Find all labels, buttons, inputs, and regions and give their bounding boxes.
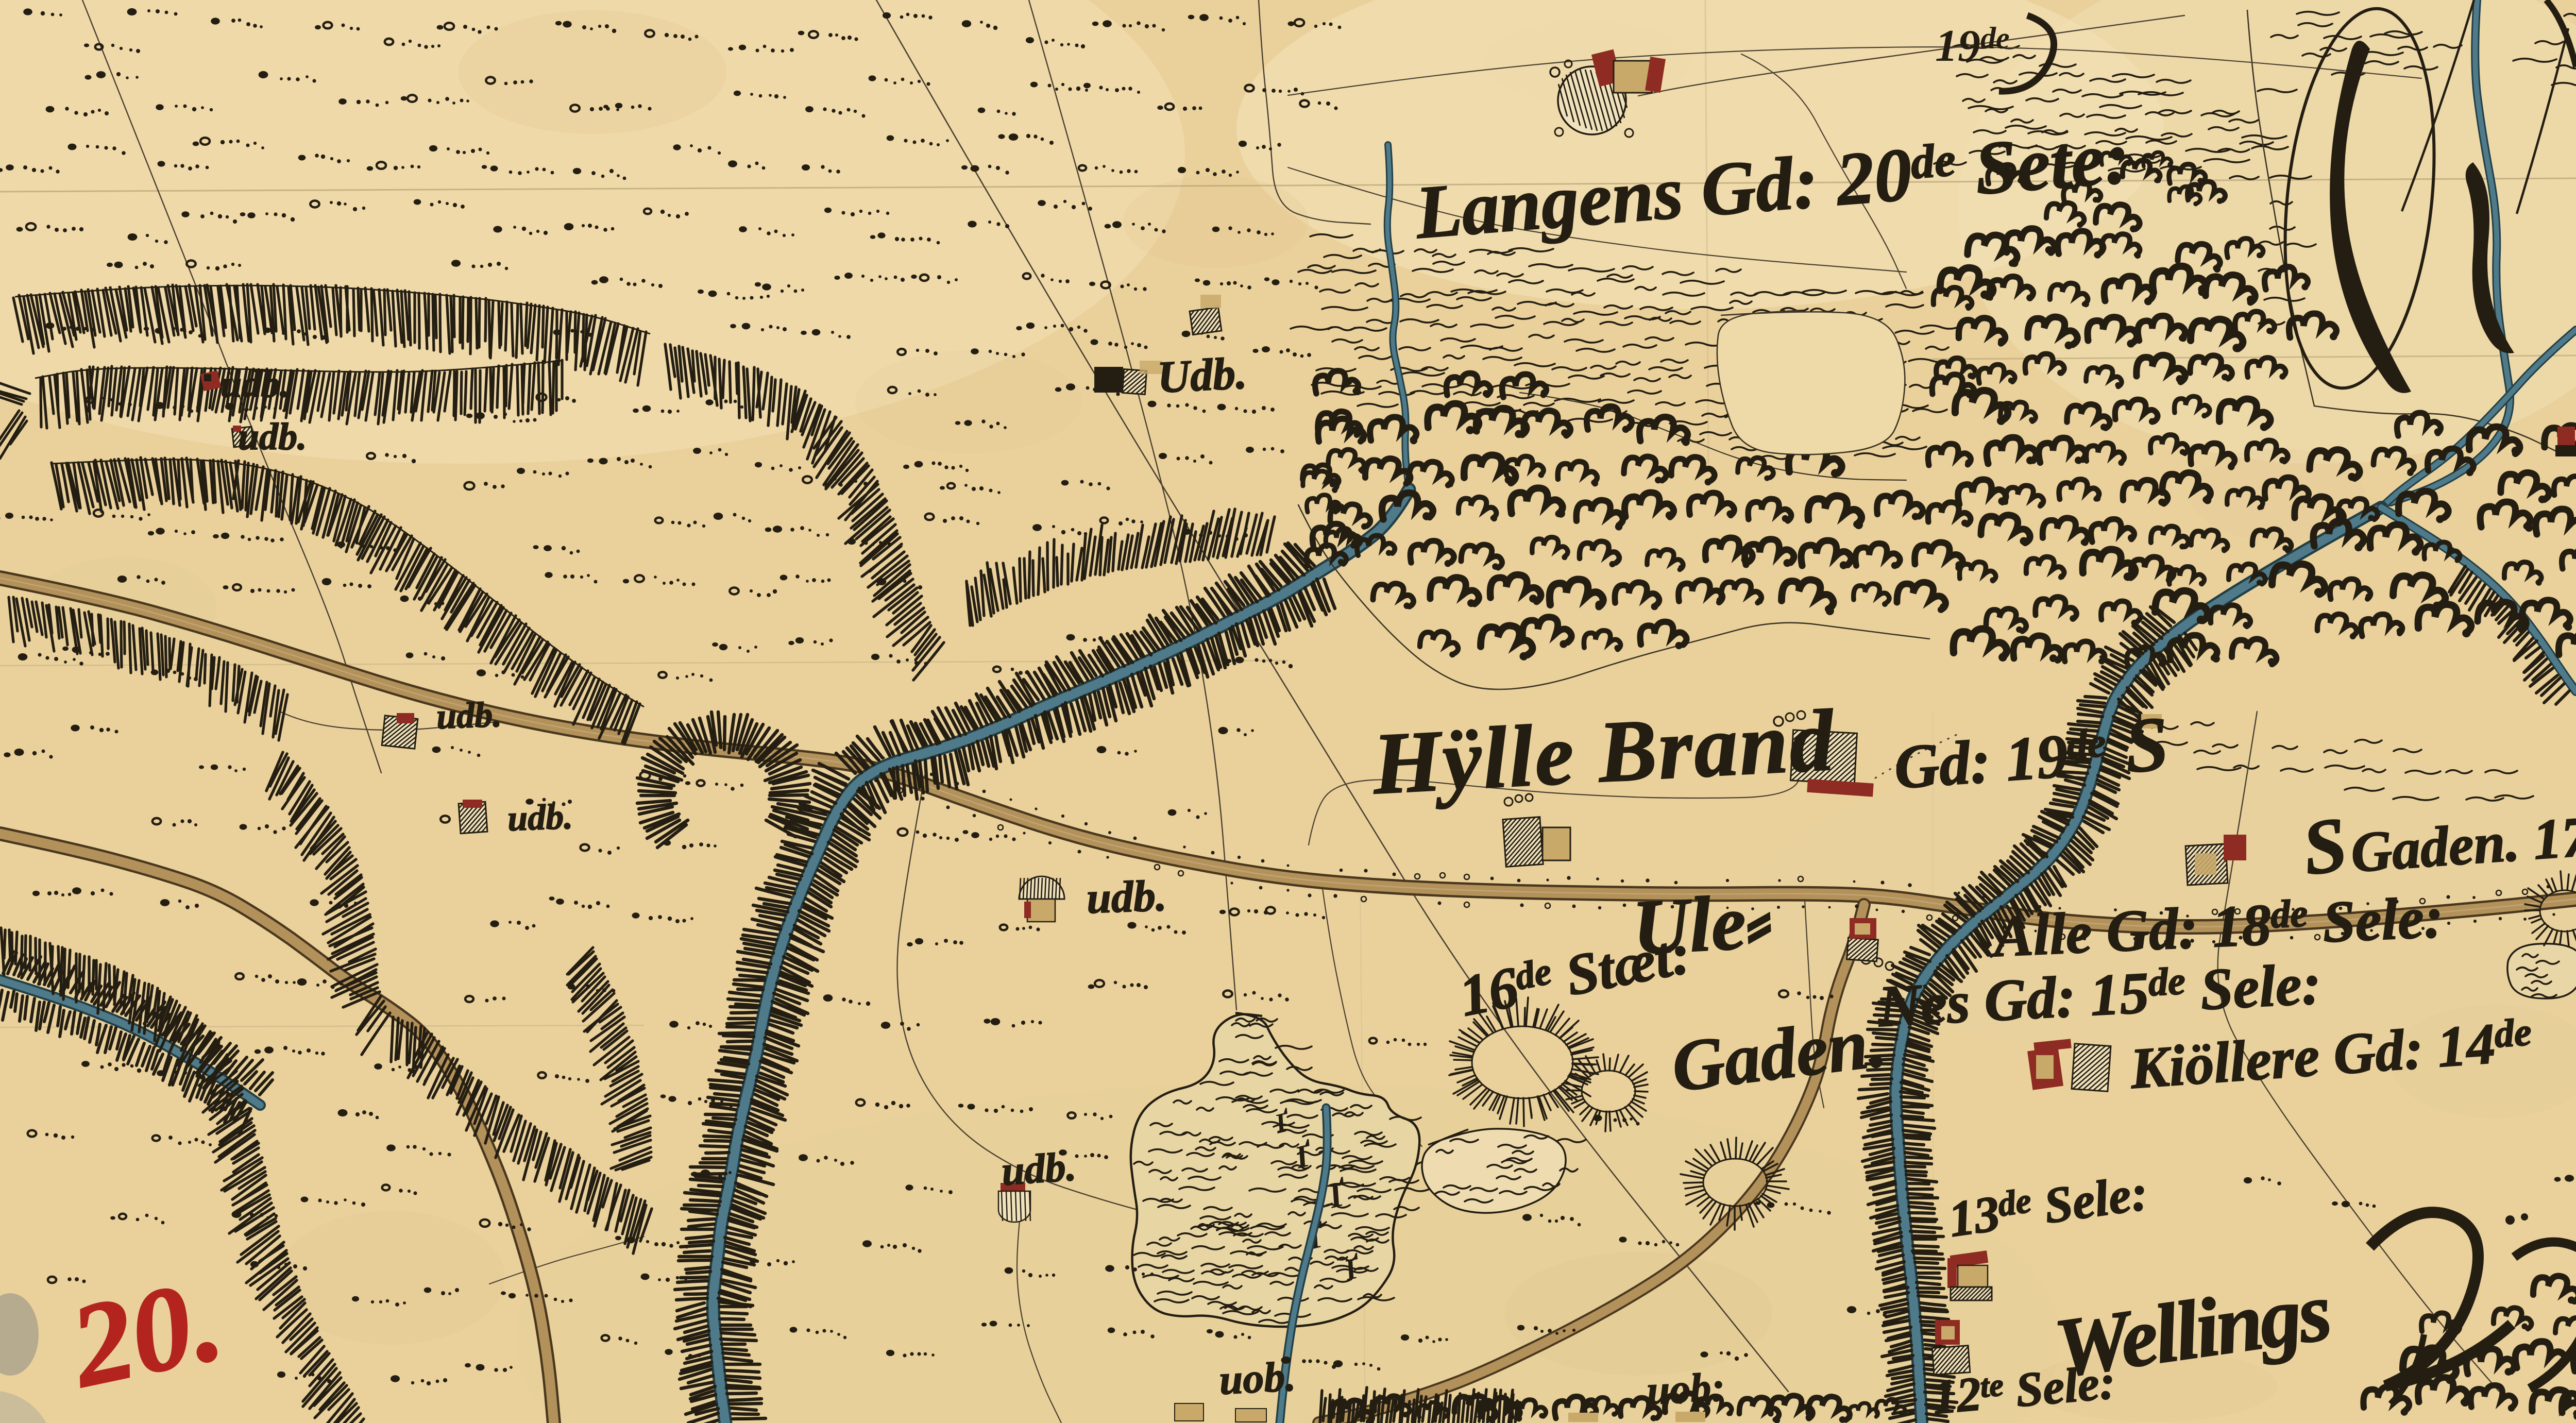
svg-text:udb.: udb. — [221, 363, 290, 405]
svg-text:uob.: uob. — [1218, 1352, 1297, 1403]
svg-text:udb.: udb. — [1000, 1144, 1077, 1194]
svg-text:uob:: uob: — [1646, 1364, 1726, 1414]
svg-text:udb.: udb. — [1086, 871, 1167, 923]
svg-text:udb.: udb. — [436, 695, 502, 737]
svg-text:udb.: udb. — [507, 797, 573, 839]
svg-text:Udb.: Udb. — [1156, 348, 1248, 403]
svg-text:udb.: udb. — [238, 416, 307, 458]
